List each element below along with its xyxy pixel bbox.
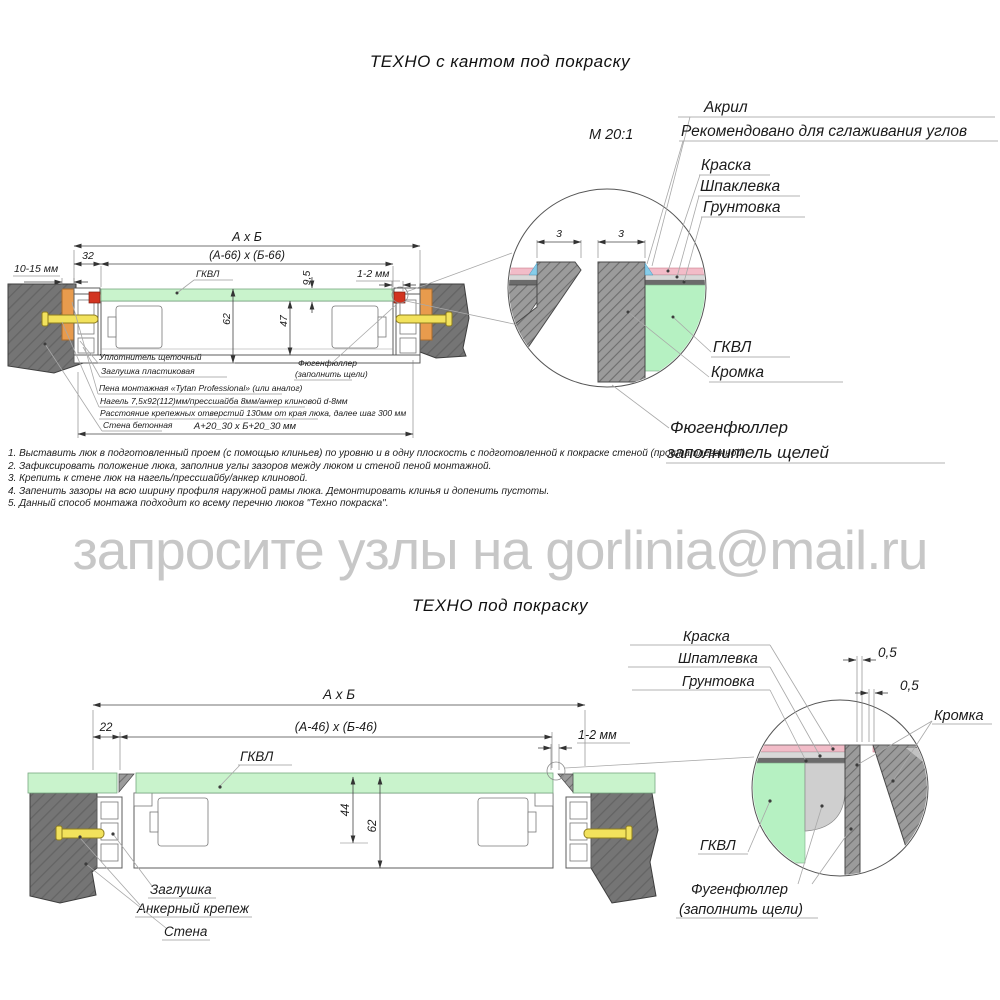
wall-label: Стена бетонная — [103, 420, 173, 430]
fastener-label: Нагель 7,5х92(112)мм/прессшайба 8мм/анке… — [100, 396, 348, 406]
wall-left-bottom — [30, 793, 97, 903]
drawing-sheet: А х Б (А-66) х (Б-66) 32 10-15 мм 1-2 мм — [0, 0, 1000, 1000]
dim-height-bottom-label: 62 — [367, 819, 379, 832]
filler-break-left — [119, 774, 134, 792]
anchor-left-head-bottom — [56, 826, 62, 840]
gap05-1-label: 0,5 — [878, 645, 897, 660]
putty-callout-bottom: Шпатлевка — [678, 651, 758, 667]
bottom-title: ТЕХНО под покраску — [0, 596, 1000, 616]
dim-inner-bottom: (А-46) х (Б-46) 22 — [93, 720, 552, 770]
gap3-left-label: 3 — [556, 228, 562, 240]
gasket-left — [89, 292, 100, 303]
dim-wall-gap-label: 10-15 мм — [14, 263, 58, 275]
note-2: 2. Зафиксировать положение люка, заполни… — [8, 461, 768, 474]
filler-callout-bottom-1: Фугенфюллер — [691, 882, 788, 898]
gkvl-detail-green-bottom — [752, 763, 805, 863]
primer-layer-left — [508, 280, 537, 285]
anchor-left-head — [42, 312, 48, 326]
plug-label: Заглушка пластиковая — [101, 366, 195, 376]
dim-inner-label: (А-66) х (Б-66) — [209, 250, 285, 262]
note-3: 3. Крепить к стене люк на нагель/прессша… — [8, 473, 768, 486]
acryl-callout: Акрил — [703, 99, 748, 116]
edge-block — [598, 262, 645, 382]
anchor-right — [396, 315, 450, 323]
dim-opening-label: А+20_30 х Б+20_30 мм — [193, 421, 297, 432]
primer-layer-bottom — [752, 758, 845, 763]
dim-flange-label: 32 — [82, 250, 94, 262]
dim-overall-bottom-label: А х Б — [322, 687, 355, 702]
primer-layer-right — [645, 280, 709, 285]
acryl-note-callout: Рекомендовано для сглаживания углов — [681, 123, 967, 140]
gkvl-label: ГКВЛ — [196, 269, 220, 280]
note-4: 4. Запенить зазоры на всю ширину профиля… — [8, 486, 768, 499]
seal-label: Уплотнитель щеточный — [98, 352, 202, 362]
top-title: ТЕХНО с кантом под покраску — [0, 52, 1000, 72]
gkvl-band-lid — [136, 773, 553, 793]
watermark-text: запросите узлы на gorlinia@mail.ru — [0, 518, 1000, 582]
putty-layer-left — [508, 275, 537, 280]
dim-inner-height-label: 47 — [278, 314, 290, 327]
edge-callout-bottom: Кромка — [934, 708, 984, 724]
dim-height-label: 62 — [221, 313, 233, 325]
wall-label-bottom: Стена — [164, 924, 208, 939]
gkvl-panel — [101, 289, 393, 301]
spacing-label: Расстояние крепежных отверстий 130мм от … — [100, 408, 406, 418]
gap05-2-label: 0,5 — [900, 678, 919, 693]
anchor-right-head — [446, 312, 452, 326]
primer-callout-bottom: Грунтовка — [682, 674, 755, 690]
gap3-right-label: 3 — [618, 228, 624, 240]
filler-label-2: (заполнить щели) — [295, 369, 368, 379]
note-5: 5. Данный способ монтажа подходит ко все… — [8, 498, 768, 511]
dim-inner-bottom-label: (А-46) х (Б-46) — [295, 720, 377, 734]
anchor-left — [44, 315, 98, 323]
bottom-detail-view: 0,5 0,5 Краска Шпатлевка Грунтовка Кромк… — [628, 629, 992, 918]
dim-flange-bottom-label: 22 — [99, 722, 113, 734]
filler-callout-bottom-2: (заполнить щели) — [679, 902, 803, 918]
anchor-right-head-bottom — [626, 826, 632, 840]
stiffener-left-bottom — [158, 798, 208, 846]
dim-depth-label: 44 — [340, 804, 352, 817]
plug-label-bottom: Заглушка — [150, 882, 212, 897]
dim-edge-gap-bottom-label: 1-2 мм — [578, 728, 617, 742]
primer-callout: Грунтовка — [703, 199, 781, 216]
filler-break-right — [558, 774, 573, 792]
lid-step-left — [134, 793, 152, 806]
stiffener-right-bottom — [478, 798, 528, 846]
note-1: 1. Выставить люк в подготовленный проем … — [8, 448, 768, 461]
top-detail-view: 3 3 М 20:1 Акрил Рекомендовано для сглаж… — [506, 99, 998, 463]
gkvl-lid-label: ГКВЛ — [240, 749, 274, 764]
anchor-label-bottom: Анкерный крепеж — [136, 901, 250, 916]
gkvl-band-right — [573, 773, 655, 793]
foam-label: Пена монтажная «Tytan Professional» (или… — [99, 383, 303, 393]
dim-panel-label: 9,5 — [301, 271, 313, 286]
gkvl-callout-bottom: ГКВЛ — [700, 838, 736, 854]
wall-right-bottom — [591, 793, 658, 903]
installation-notes: 1. Выставить люк в подготовленный проем … — [8, 448, 768, 511]
edge-callout-top: Кромка — [711, 364, 764, 381]
paint-layer-right — [645, 268, 709, 275]
dim-overall-label: А х Б — [231, 230, 262, 244]
stiffener-left-tab-bottom — [150, 812, 158, 832]
scale-label: М 20:1 — [589, 127, 633, 143]
top-assembly-drawing: А х Б (А-66) х (Б-66) 32 10-15 мм 1-2 мм — [8, 230, 514, 438]
detail-origin-marker-bottom — [547, 762, 565, 780]
stiffener-left-tab — [108, 317, 116, 337]
filler-label-1: Фюгенфюллер — [298, 358, 357, 368]
putty-callout: Шпаклевка — [700, 178, 781, 195]
dim-edge-gap-label: 1-2 мм — [357, 268, 390, 280]
paint-layer-bottom-left — [752, 745, 860, 752]
bottom-assembly-drawing: А х Б (А-46) х (Б-46) 22 1-2 мм 44 62 ГК… — [28, 687, 754, 940]
paint-callout-bottom: Краска — [683, 629, 730, 645]
putty-layer-bottom — [752, 752, 845, 758]
dim-inner-top: (А-66) х (Б-66) 32 — [74, 250, 393, 287]
stiffener-right-tab-bottom — [528, 812, 536, 832]
stiffener-left — [116, 306, 162, 348]
gkvl-callout-top: ГКВЛ — [713, 339, 752, 356]
lid-step-right — [535, 793, 553, 806]
anchor-right-bottom — [584, 829, 630, 838]
paint-callout: Краска — [701, 157, 751, 174]
filler-callout-1: Фюгенфюллер — [670, 418, 788, 437]
gkvl-band-left — [28, 773, 117, 793]
